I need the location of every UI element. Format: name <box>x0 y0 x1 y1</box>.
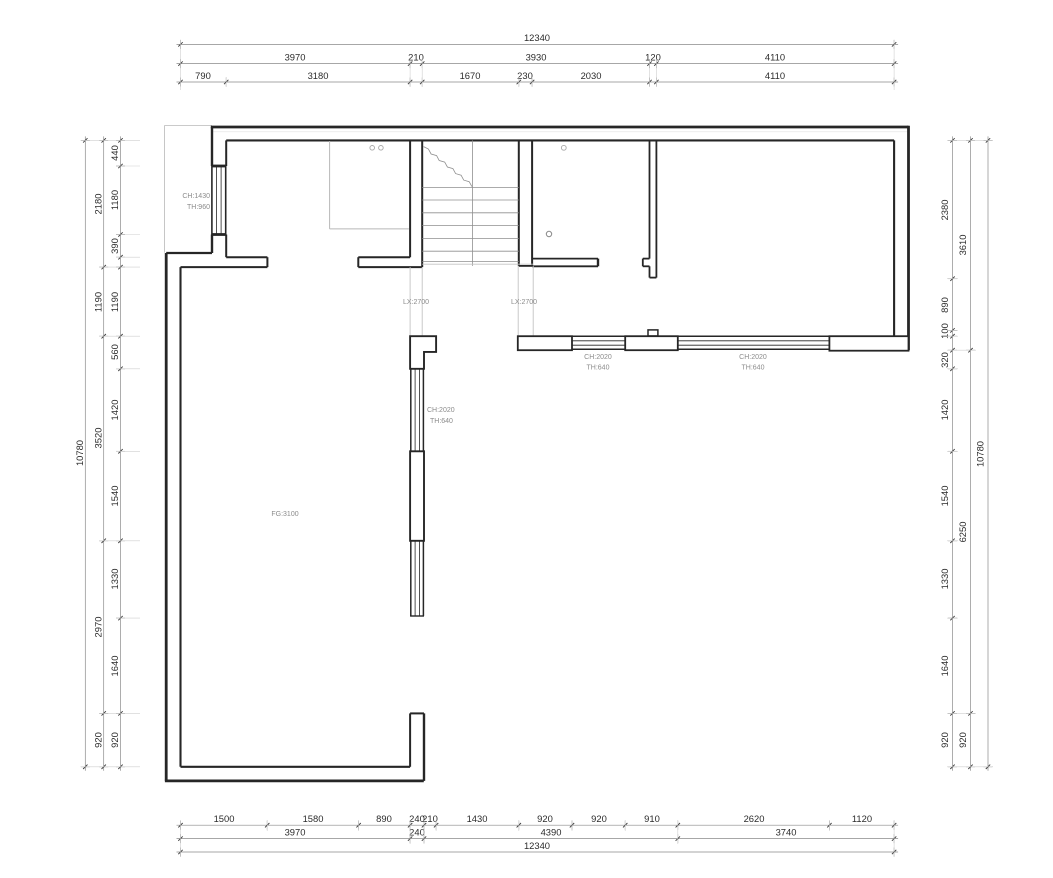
svg-text:4110: 4110 <box>765 70 785 81</box>
svg-text:920: 920 <box>109 732 120 748</box>
svg-text:2380: 2380 <box>939 200 950 221</box>
svg-text:LX:2700: LX:2700 <box>403 299 429 306</box>
svg-text:2030: 2030 <box>581 70 602 81</box>
svg-text:920: 920 <box>591 813 607 824</box>
svg-text:1500: 1500 <box>214 813 235 824</box>
svg-text:LX:2700: LX:2700 <box>511 299 537 306</box>
svg-text:1430: 1430 <box>467 813 488 824</box>
svg-text:2180: 2180 <box>92 194 103 215</box>
svg-text:320: 320 <box>939 352 950 368</box>
svg-text:1540: 1540 <box>109 486 120 507</box>
svg-text:440: 440 <box>109 145 120 161</box>
svg-text:910: 910 <box>644 813 660 824</box>
svg-text:1120: 1120 <box>852 813 872 824</box>
svg-text:12340: 12340 <box>524 840 550 851</box>
svg-text:230: 230 <box>517 70 533 81</box>
svg-text:210: 210 <box>408 51 424 62</box>
svg-text:6250: 6250 <box>957 522 968 543</box>
svg-text:3740: 3740 <box>776 826 797 837</box>
svg-text:890: 890 <box>376 813 392 824</box>
svg-text:3970: 3970 <box>285 51 306 62</box>
svg-text:240: 240 <box>409 826 425 837</box>
svg-text:2970: 2970 <box>92 617 103 638</box>
svg-text:4390: 4390 <box>541 826 562 837</box>
svg-text:CH:2020: CH:2020 <box>584 354 612 361</box>
svg-text:1330: 1330 <box>109 569 120 590</box>
svg-text:TH:960: TH:960 <box>187 204 210 211</box>
svg-text:3930: 3930 <box>526 51 547 62</box>
svg-text:CH:2020: CH:2020 <box>739 354 767 361</box>
svg-text:CH:1430: CH:1430 <box>182 193 210 200</box>
svg-text:3180: 3180 <box>308 70 329 81</box>
svg-text:1330: 1330 <box>939 569 950 590</box>
svg-text:10780: 10780 <box>975 441 986 467</box>
svg-text:TH:640: TH:640 <box>430 418 453 425</box>
svg-text:1180: 1180 <box>109 190 120 210</box>
svg-text:1670: 1670 <box>460 70 481 81</box>
svg-text:920: 920 <box>92 732 103 748</box>
svg-text:390: 390 <box>109 238 120 254</box>
svg-text:1420: 1420 <box>939 400 950 421</box>
svg-text:1190: 1190 <box>92 292 103 312</box>
svg-text:10780: 10780 <box>74 440 85 466</box>
svg-text:1190: 1190 <box>109 292 120 312</box>
svg-text:3610: 3610 <box>957 235 968 256</box>
svg-text:920: 920 <box>939 732 950 748</box>
svg-text:890: 890 <box>939 297 950 313</box>
svg-text:920: 920 <box>537 813 553 824</box>
svg-text:1640: 1640 <box>939 656 950 677</box>
svg-text:2620: 2620 <box>744 813 765 824</box>
svg-text:1580: 1580 <box>303 813 324 824</box>
svg-text:12340: 12340 <box>524 32 550 43</box>
svg-text:TH:640: TH:640 <box>742 365 765 372</box>
svg-text:4110: 4110 <box>765 51 785 62</box>
svg-text:120: 120 <box>645 51 661 62</box>
svg-text:210: 210 <box>422 813 438 824</box>
svg-text:FG:3100: FG:3100 <box>271 511 298 518</box>
svg-text:560: 560 <box>109 344 120 360</box>
svg-text:3970: 3970 <box>285 826 306 837</box>
svg-text:TH:640: TH:640 <box>587 365 610 372</box>
svg-text:920: 920 <box>957 732 968 748</box>
svg-text:1640: 1640 <box>109 656 120 677</box>
svg-text:1540: 1540 <box>939 486 950 507</box>
svg-text:1420: 1420 <box>109 400 120 421</box>
svg-text:790: 790 <box>195 70 211 81</box>
svg-text:3520: 3520 <box>92 428 103 449</box>
svg-text:CH:2020: CH:2020 <box>427 407 455 414</box>
